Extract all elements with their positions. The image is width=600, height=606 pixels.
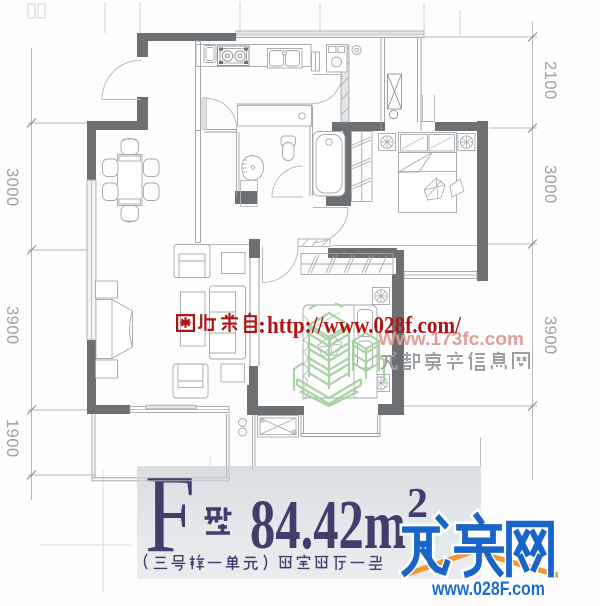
svg-text:http://www.028f.com/: http://www.028f.com/ (267, 313, 461, 339)
svg-text:84.42m: 84.42m (250, 487, 406, 564)
svg-text:3000: 3000 (541, 165, 559, 204)
svg-text::: : (258, 313, 266, 339)
svg-text:2100: 2100 (541, 61, 559, 100)
svg-text:1900: 1900 (3, 419, 21, 458)
svg-text:www.028F.com: www.028F.com (431, 579, 545, 600)
svg-text:2: 2 (407, 481, 428, 527)
svg-text:3000: 3000 (3, 168, 21, 207)
svg-text:3900: 3900 (3, 306, 21, 345)
svg-text:3900: 3900 (541, 316, 559, 355)
svg-text:F: F (145, 452, 195, 576)
